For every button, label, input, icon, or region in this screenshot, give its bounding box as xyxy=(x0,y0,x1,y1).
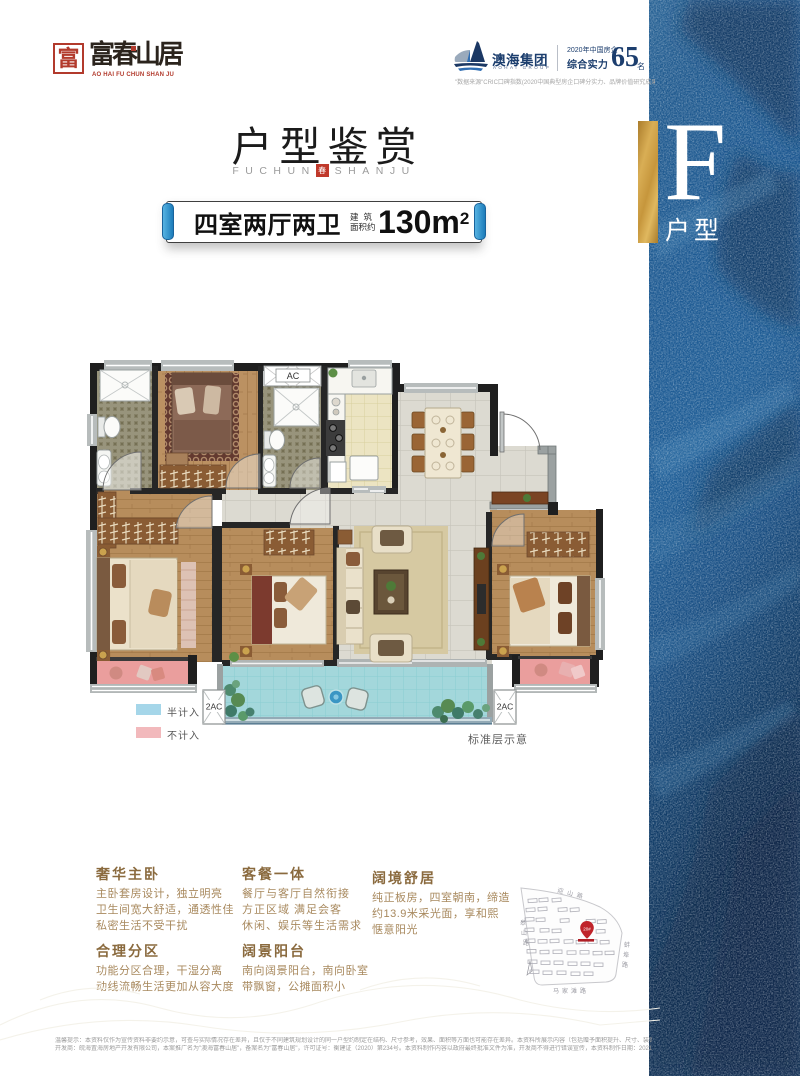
svg-text:马家滩路: 马家滩路 xyxy=(553,987,589,995)
svg-text:20#: 20# xyxy=(583,927,591,932)
svg-text:皋: 皋 xyxy=(520,919,526,927)
svg-text:路: 路 xyxy=(523,939,529,947)
svg-text:2AC: 2AC xyxy=(497,702,514,712)
svg-text:山: 山 xyxy=(521,929,527,937)
svg-text:路: 路 xyxy=(622,961,628,969)
svg-text:AC: AC xyxy=(287,371,300,381)
svg-text:埠: 埠 xyxy=(623,951,629,959)
svg-text:2AC: 2AC xyxy=(206,702,223,712)
svg-text:蚌: 蚌 xyxy=(624,941,630,949)
